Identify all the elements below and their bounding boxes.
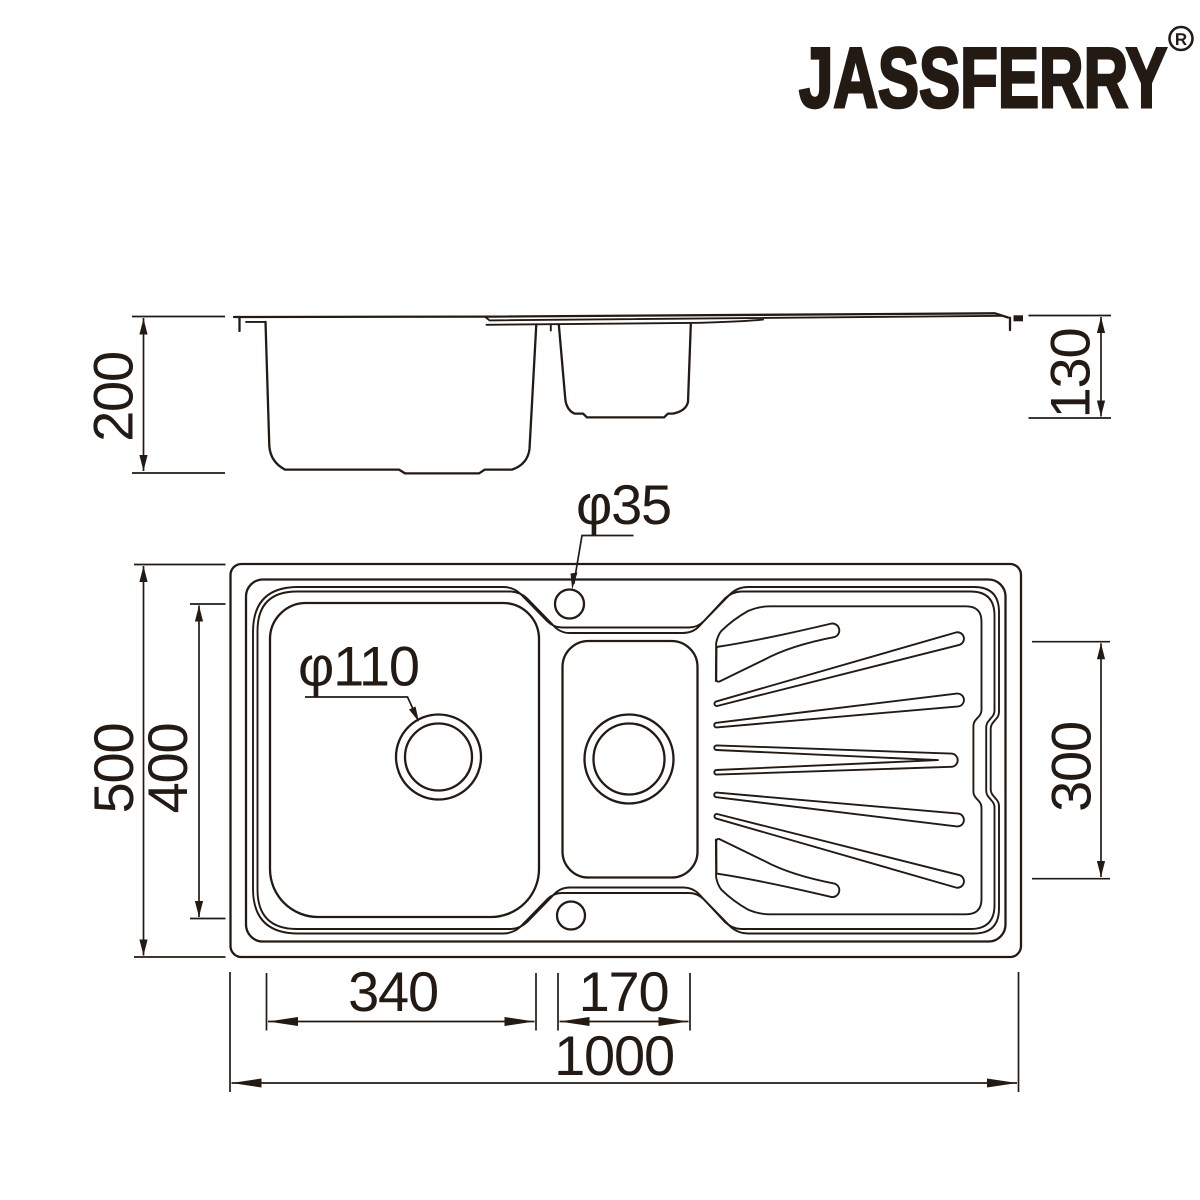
svg-text:300: 300 <box>1040 722 1103 812</box>
svg-text:1000: 1000 <box>554 1024 674 1087</box>
svg-text:JASSFERRY: JASSFERRY <box>799 31 1167 126</box>
svg-text:130: 130 <box>1039 329 1102 419</box>
svg-text:φ35: φ35 <box>576 473 671 536</box>
svg-text:400: 400 <box>136 724 199 814</box>
svg-text:200: 200 <box>82 352 145 442</box>
svg-text:R: R <box>1175 30 1187 49</box>
svg-text:170: 170 <box>579 960 669 1023</box>
svg-text:340: 340 <box>348 960 438 1023</box>
svg-text:φ110: φ110 <box>298 635 419 698</box>
